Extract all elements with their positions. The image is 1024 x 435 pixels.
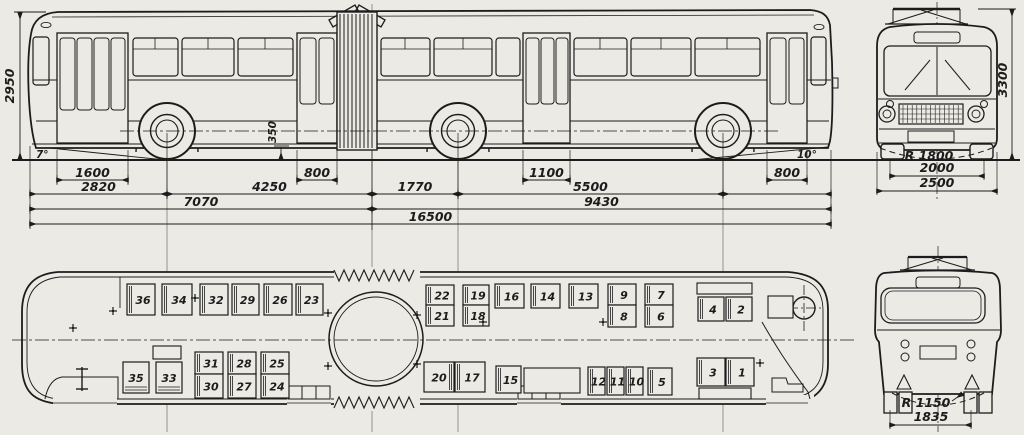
seat-number: 24 [269,381,284,394]
seat-number: 1 [738,367,746,380]
dimension-label: 4250 [251,179,287,194]
seat-35: 35 [123,362,149,393]
seat-17: 17 [455,362,485,392]
seat-number: 26 [272,294,288,307]
seat-number: 29 [240,294,256,307]
seat-34: 34 [162,284,192,315]
dimension-label: 7070 [184,194,219,209]
seat-19: 19 [463,285,489,305]
rear-body-outline [875,271,1001,395]
side-elevation-view: 7° 10° 2950 350 160080011008002820425017… [2,5,1020,230]
dimension-label: 800 [304,165,330,180]
seat-number: 16 [504,291,520,304]
seat-number: 34 [171,294,186,307]
seat-number: 35 [128,372,144,385]
seat-27: 27 [228,374,256,398]
dimension-label: 9430 [584,194,619,209]
width-label: 2500 [920,175,955,190]
seat-number: 7 [657,289,665,302]
seat-1: 1 [726,358,754,386]
rear-view: R 1150 1835 [875,246,1001,432]
cross-dot [416,314,418,316]
trailer-door-800 [297,33,337,143]
front-view: R 1800 3300 2000 2500 [877,2,1016,200]
rear-track-label: 1835 [914,409,949,424]
seat-6: 6 [645,305,673,327]
seat-number: 15 [503,374,519,387]
seat-25: 25 [261,352,289,374]
seat-16: 16 [495,284,524,308]
seat-2: 2 [726,297,752,321]
seat-number: 28 [236,358,252,371]
seat-5: 5 [648,368,672,395]
seat-number: 33 [161,372,177,385]
seat-4: 4 [698,297,724,321]
seat-number: 10 [629,376,645,389]
rear-turn-radius-label: R 1150 [902,395,951,410]
seat-number: 9 [620,289,628,302]
seat-number: 20 [431,372,447,385]
bench-box [524,368,580,393]
seat-31: 31 [195,352,223,374]
seat-24: 24 [261,374,289,398]
bench-box [768,296,793,318]
radius-arrow [952,394,962,401]
seat-3: 3 [697,358,725,386]
dimension-label: 1100 [529,165,564,180]
track-label: 2000 [920,160,955,175]
seat-number: 13 [578,291,594,304]
seat-10: 10 [626,367,644,395]
roof-rack-front [885,9,968,24]
seat-8: 8 [608,305,636,327]
cross-dot [327,312,329,314]
seat-22: 22 [426,285,454,305]
cross-dot [194,297,196,299]
bench-box [699,388,751,399]
height-label: 2950 [2,68,17,103]
front-wheel [881,144,904,159]
heater-box [153,346,181,359]
seat-number: 6 [657,311,665,324]
roof-rack-rear [900,257,975,270]
seat-13: 13 [569,284,598,308]
cross-dot [482,321,484,323]
seat-number: 22 [434,290,450,303]
seat-23: 23 [296,284,323,315]
seat-15: 15 [496,366,521,393]
seat-9: 9 [608,284,636,305]
dimension-label: 800 [774,165,800,180]
seat-number: 8 [620,311,628,324]
seat-18: 18 [463,305,489,326]
dimension-label: 5500 [573,179,608,194]
seat-number: 25 [269,358,285,371]
seat-33: 33 [156,362,182,393]
dimension-label: 1600 [75,165,110,180]
seat-number: 21 [434,310,449,323]
front-door-800 [767,33,807,143]
dimension-label: 16500 [409,209,453,224]
seat-21: 21 [426,305,454,326]
seat-number: 27 [236,381,252,394]
seat-number: 17 [464,372,480,385]
seat-32: 32 [200,284,228,315]
front-height-label: 3300 [995,62,1010,97]
cross-dot [416,363,418,365]
bench-box [697,283,752,294]
seat-26: 26 [264,284,292,315]
cross-dot [112,310,114,312]
dimension-label: 1770 [398,179,433,194]
cross-dot [327,365,329,367]
seat-number: 14 [540,291,555,304]
seat-number: 11 [610,376,625,389]
seat-29: 29 [232,284,259,315]
articulation-bellows [329,5,385,150]
seat-number: 2 [737,304,745,317]
bus-blueprint-drawing: 7° 10° 2950 350 160080011008002820425017… [0,0,1024,435]
seat-30: 30 [195,374,223,398]
dimension-label: 2820 [81,179,116,194]
seat-number: 4 [708,304,717,317]
angle-left-label: 7° [36,149,49,161]
rear-door-1600 [57,33,128,143]
seat-number: 36 [135,294,151,307]
seat-number: 30 [203,381,219,394]
seat-number: 31 [203,358,218,371]
cross-dot [72,327,74,329]
seat-number: 32 [208,294,224,307]
seat-20: 20 [424,362,454,392]
seat-number: 23 [304,294,320,307]
floor-plan-view: 3634322926232221191816141398764235333130… [12,267,856,411]
seat-14: 14 [531,284,560,308]
seat-11: 11 [607,367,625,395]
cross-dot [602,321,604,323]
seat-7: 7 [645,284,673,305]
step-height-label: 350 [267,121,279,143]
seat-number: 5 [658,376,666,389]
blueprint-sheet: 7° 10° 2950 350 160080011008002820425017… [0,0,1024,435]
seat-number: 12 [591,376,607,389]
seat-number: 19 [470,290,486,303]
seat-12: 12 [588,367,606,395]
seat-28: 28 [228,352,256,374]
cross-dot [759,362,761,364]
middle-door-1100 [523,33,570,143]
seat-36: 36 [127,284,155,315]
seat-number: 3 [709,367,717,380]
